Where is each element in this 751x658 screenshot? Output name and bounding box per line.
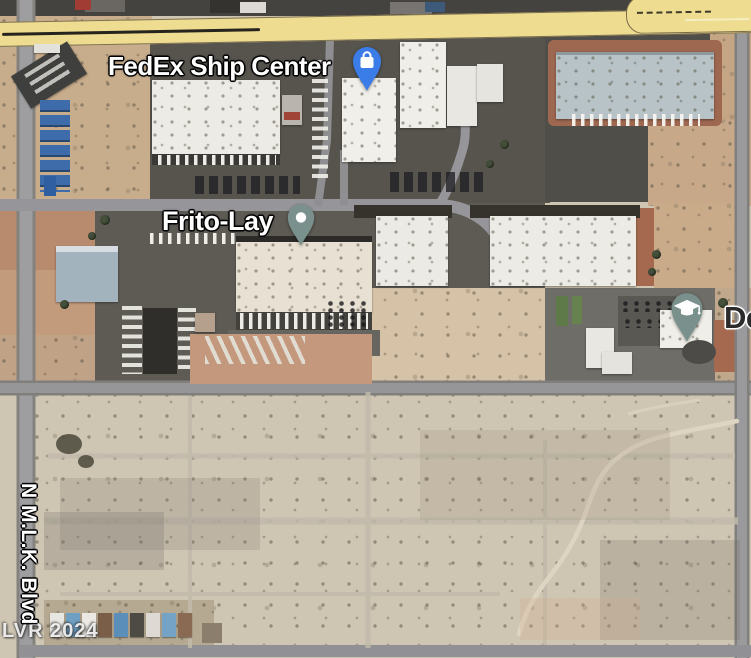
desert-patch [420,430,670,520]
house [178,613,192,637]
house [162,613,176,637]
house [98,613,112,637]
tree [88,232,96,240]
pin-teardrop [288,204,314,245]
pin-teardrop [353,47,381,91]
desert-brush-clump [56,434,82,454]
bluegray-dock-trailers [572,114,700,126]
fedex-annex [282,95,302,125]
desert-patch [44,512,164,570]
tree [486,160,494,168]
fedex-place-pin[interactable] [350,45,384,93]
bluegray-warehouse [556,52,714,119]
warehouse-mid-1 [376,216,448,286]
truck-row [390,172,485,192]
highway-lane-line [685,18,749,21]
fedex-dock-trailers [158,155,276,165]
white-building-cluster-3 [477,64,503,102]
tree [500,140,509,149]
house [114,613,128,637]
blue-truck [44,176,56,196]
fedex-warehouse [152,80,280,154]
desert-trail-branch [628,400,700,414]
school-building-2 [602,352,632,374]
highway-centerline [2,28,260,36]
highway-widening [626,0,751,34]
slanted-trailers [205,336,305,364]
house [146,613,160,637]
satellite-map[interactable]: FedEx Ship Center Frito-Lay De N M.L.K. … [0,0,751,658]
small-shed [195,313,215,332]
tree [60,300,69,309]
dark-yard-block [143,308,177,374]
school-place-label-partial[interactable]: De [724,300,751,336]
white-building-cluster-1 [400,42,446,128]
truck-row [195,176,300,194]
fedex-annex-red-roof [284,112,300,120]
dot-icon [296,212,306,222]
tree [652,250,661,259]
tree [648,268,656,276]
highway-lane-dash [637,11,711,14]
frito-lay-place-pin[interactable] [285,202,317,248]
fedex-place-label[interactable]: FedEx Ship Center [108,51,331,82]
house [130,613,144,637]
parked-cars [325,300,367,330]
desert-patch [520,598,640,640]
white-truck [34,44,60,53]
school-lawn [572,296,582,324]
bluegray-small-building [56,246,118,302]
tree [100,215,110,225]
frito-lay-place-label[interactable]: Frito-Lay [162,206,273,237]
school-place-pin[interactable] [668,291,706,344]
trailer-rows-left [122,306,142,374]
street-name-label: N M.L.K. Blvd [16,483,40,625]
desert-brush-clump [78,455,94,468]
white-building-cluster-2 [447,66,477,126]
school-lawn [556,296,568,326]
warehouse-mid-2 [490,216,636,286]
house-annex [202,623,222,643]
